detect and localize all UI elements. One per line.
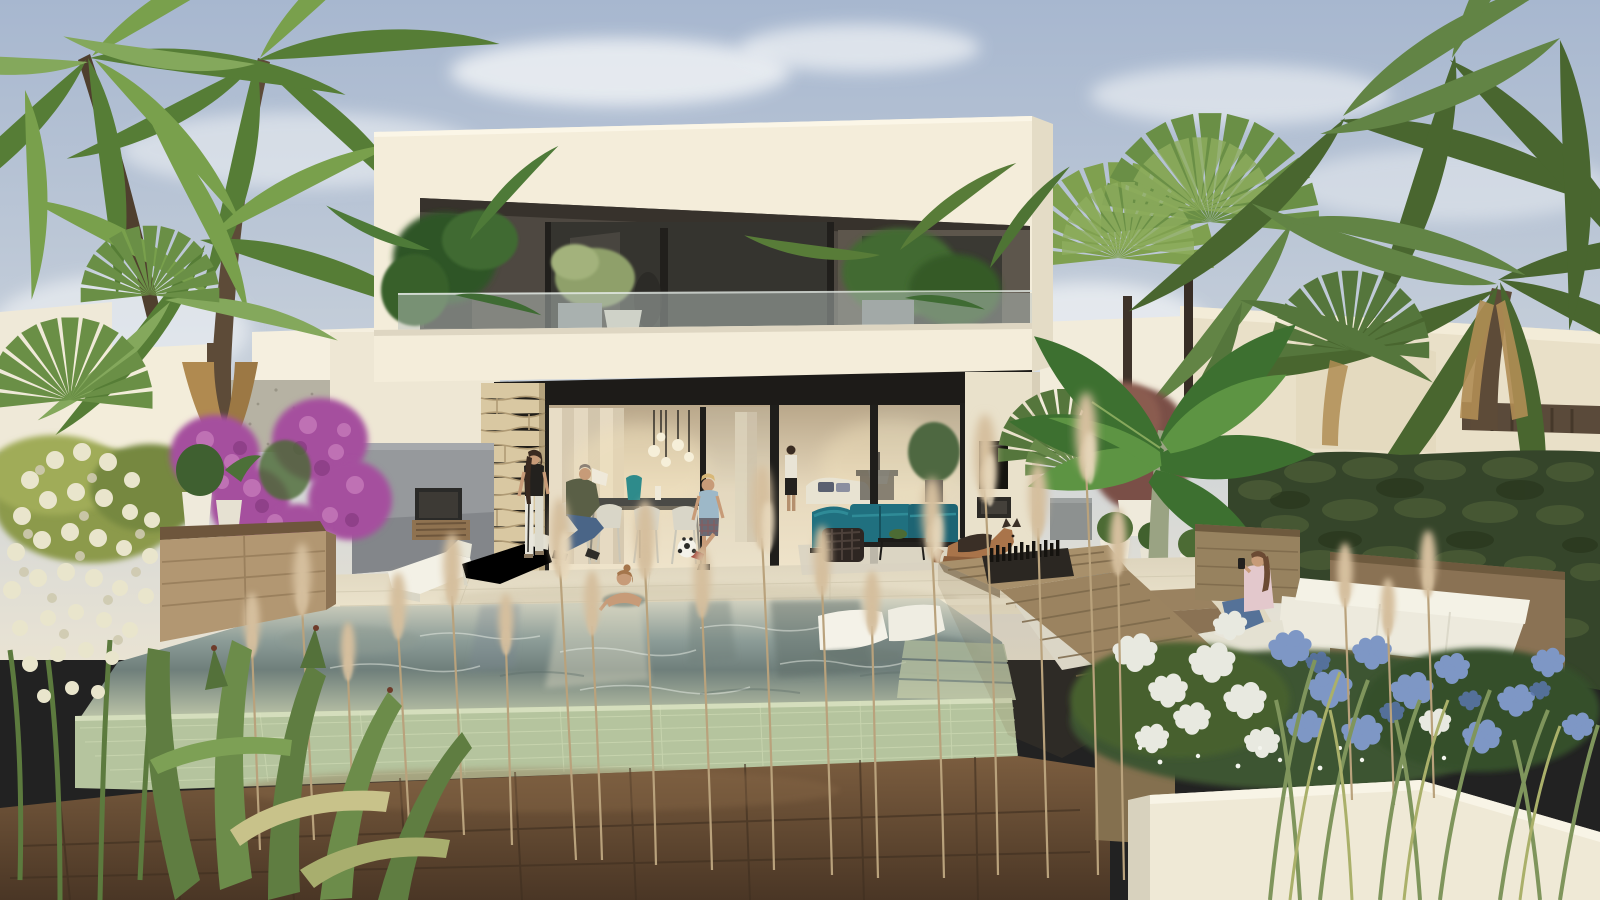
cube-pot <box>1050 498 1092 540</box>
teal-vase <box>626 475 642 500</box>
blue-tshirt <box>699 490 719 518</box>
plant-bowl <box>889 529 907 539</box>
upper-facade-side <box>1032 116 1053 372</box>
hair-bun <box>623 564 630 571</box>
villa-render-stage <box>0 0 1600 900</box>
villa-upper-floor <box>325 116 1087 382</box>
boug-foliage <box>259 440 311 500</box>
villa-render <box>0 0 1600 900</box>
phone <box>1238 558 1245 569</box>
